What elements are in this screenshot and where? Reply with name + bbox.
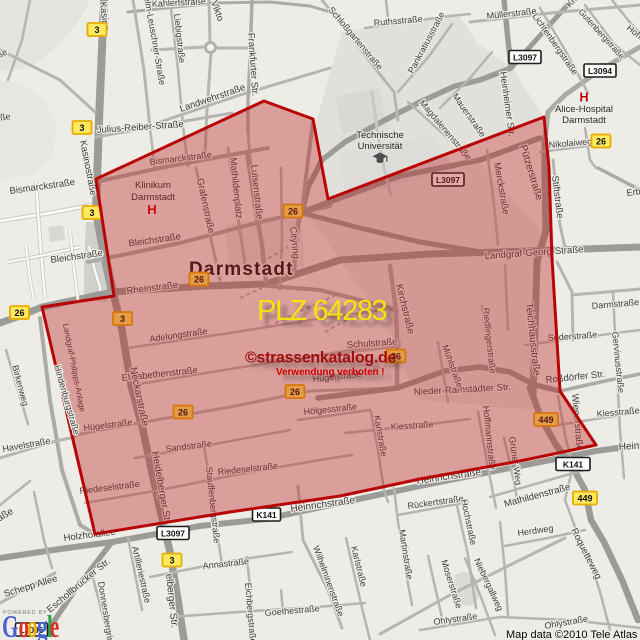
svg-text:K141: K141 xyxy=(563,459,584,469)
svg-text:Verwendung verboten !: Verwendung verboten ! xyxy=(276,367,384,378)
svg-text:3: 3 xyxy=(79,123,84,133)
svg-text:3: 3 xyxy=(169,555,174,565)
svg-text:L3094: L3094 xyxy=(588,66,612,76)
svg-text:K141: K141 xyxy=(256,510,277,520)
svg-text:©strassenkatalog.de: ©strassenkatalog.de xyxy=(245,350,396,367)
svg-text:3: 3 xyxy=(94,25,99,35)
svg-text:e: e xyxy=(50,609,59,640)
svg-text:H: H xyxy=(579,91,588,105)
svg-text:449: 449 xyxy=(577,493,592,503)
svg-text:G: G xyxy=(2,609,18,640)
svg-text:Alice-Hospital: Alice-Hospital xyxy=(555,104,613,115)
svg-text:o: o xyxy=(27,609,38,640)
svg-text:L3097: L3097 xyxy=(513,52,537,62)
svg-text:Map data ©2010 Tele Atlas: Map data ©2010 Tele Atlas xyxy=(506,629,638,640)
svg-text:26: 26 xyxy=(596,136,606,146)
svg-text:Universität: Universität xyxy=(358,141,403,152)
svg-text:PLZ 64283: PLZ 64283 xyxy=(257,295,387,327)
svg-text:26: 26 xyxy=(14,308,24,318)
svg-text:Darmstadt: Darmstadt xyxy=(562,115,606,126)
svg-text:L3097: L3097 xyxy=(161,528,185,538)
svg-text:Technische: Technische xyxy=(356,130,404,141)
svg-text:3: 3 xyxy=(89,208,94,218)
